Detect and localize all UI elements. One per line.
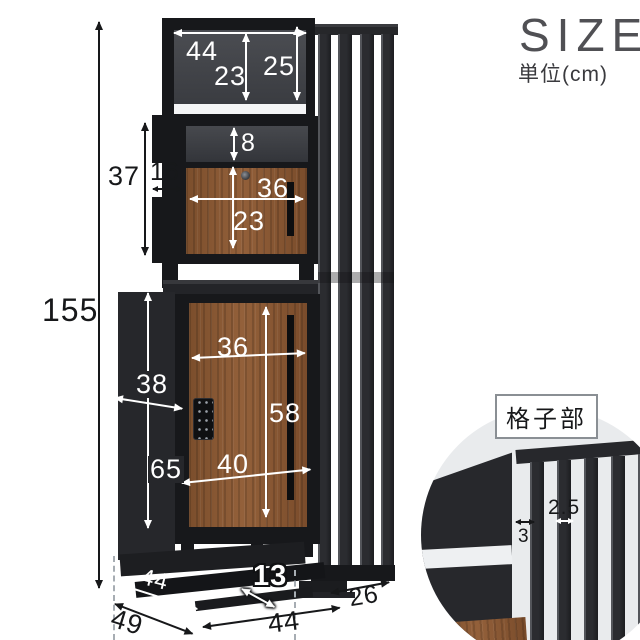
dim-arrow-signboard-25 (296, 27, 298, 100)
dim-arrow-signboard-44 (174, 32, 306, 34)
mailbox-bracket-bottom (152, 197, 180, 263)
lattice-detail-title: 格子部 (506, 399, 587, 434)
dim-label-detail-2-5: 2.5 (548, 497, 580, 518)
dim-arrow-detail-2-5 (556, 520, 573, 522)
dim-label-gap-16: 16 (150, 160, 180, 185)
detail-cabinet-corner (421, 448, 512, 640)
dim-label-155: 155 (42, 294, 98, 326)
dim-arrow-mailbox-37 (144, 123, 146, 255)
dim-label-maildoor-36: 36 (257, 175, 289, 202)
dim-label-depth-38: 38 (134, 371, 170, 398)
unit-label: 単位(cm) (518, 58, 608, 88)
dim-arrow-lower-65 (147, 293, 149, 528)
dim-label-foot-13: 13 (253, 562, 287, 591)
dim-label-signboard-25: 25 (263, 53, 295, 80)
lattice-joint (318, 272, 394, 283)
combination-lock (193, 398, 214, 440)
dim-label-opening-40: 40 (217, 451, 249, 478)
dim-label-detail-3: 3 (518, 527, 530, 546)
lattice-detail-title-box: 格子部 (495, 394, 598, 439)
dim-label-lattice-26: 26 (347, 582, 380, 611)
mailbox-bracket-top (152, 115, 180, 163)
page-title: SIZE (519, 8, 640, 62)
dim-label-width-44: 44 (266, 607, 301, 638)
dim-label-flap-8: 8 (241, 131, 256, 156)
dim-label-signboard-23: 23 (214, 63, 246, 90)
dim-label-mailbox-37: 37 (108, 163, 140, 190)
sign-board-strip (174, 104, 306, 114)
dim-arrow-gap-16 (153, 188, 181, 190)
dim-arrow-detail-3 (516, 521, 534, 523)
dim-label-lower-65: 65 (148, 456, 184, 483)
dim-arrow-flap-8 (233, 128, 235, 160)
dim-label-cabinet-58: 58 (269, 400, 301, 427)
size-diagram-canvas: SIZE 単位(cm) (0, 0, 640, 640)
dim-label-maildoor-23: 23 (233, 208, 265, 235)
mailbox-keyhole (241, 171, 250, 180)
dim-label-base-44: 44 (139, 565, 171, 594)
dim-label-cabinet-36: 36 (217, 334, 249, 361)
dim-arrow-cabinet-58 (265, 307, 267, 517)
